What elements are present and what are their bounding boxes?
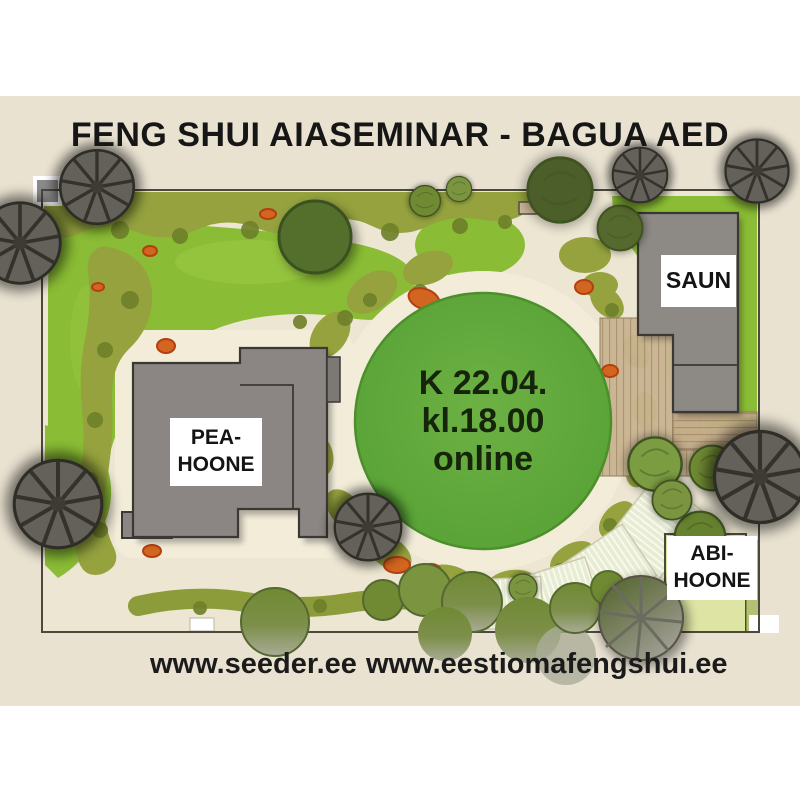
poster-title: FENG SHUI AIASEMINAR - BAGUA AED (0, 116, 800, 155)
round-tree-icon (445, 175, 473, 203)
conifer-tree-icon (328, 487, 408, 567)
pea-hoone-label: PEA- HOONE (170, 418, 262, 486)
event-time: kl.18.00 (363, 402, 603, 440)
round-tree-icon (595, 203, 645, 253)
website-link-seeder: www.seeder.ee (150, 648, 357, 681)
event-info: K 22.04. kl.18.00 online (363, 364, 603, 478)
path-tag (190, 618, 214, 631)
abi-hoone-label: ABI- HOONE (667, 536, 757, 600)
website-link-fengshui: www.eestiomafengshui.ee (366, 648, 728, 681)
round-tree-icon (408, 184, 442, 218)
event-date: K 22.04. (363, 364, 603, 402)
conifer-tree-icon (6, 452, 111, 557)
round-tree-icon (524, 154, 595, 225)
corner-tag (749, 615, 779, 633)
round-tree-icon (650, 478, 693, 521)
seminar-poster: FENG SHUI AIASEMINAR - BAGUA AED PEA- HO… (0, 0, 800, 800)
event-format: online (363, 440, 603, 478)
saun-label: SAUN (661, 255, 736, 307)
conifer-tree-icon (53, 143, 141, 231)
